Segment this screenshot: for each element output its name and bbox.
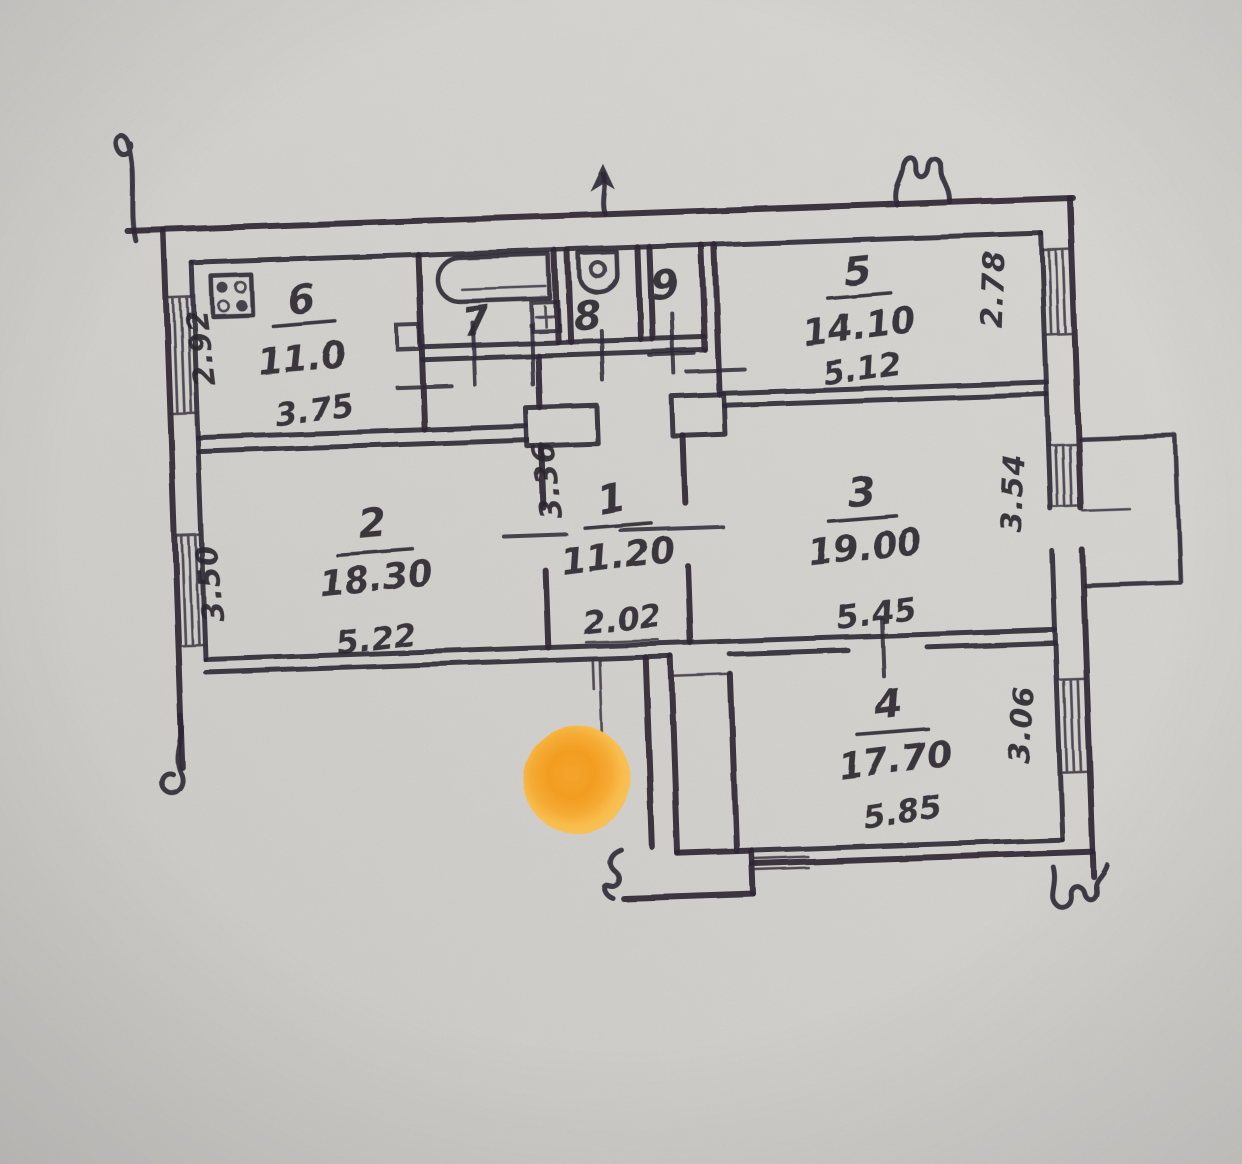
floor-plan-photo: 6 11.0 3.75 7 8 9 5 14.10 5.12 2 18.30 5… bbox=[0, 0, 1242, 1164]
floor-plan-canvas: 6 11.0 3.75 7 8 9 5 14.10 5.12 2 18.30 5… bbox=[0, 0, 1242, 1164]
photo-vignette bbox=[0, 0, 1242, 1164]
